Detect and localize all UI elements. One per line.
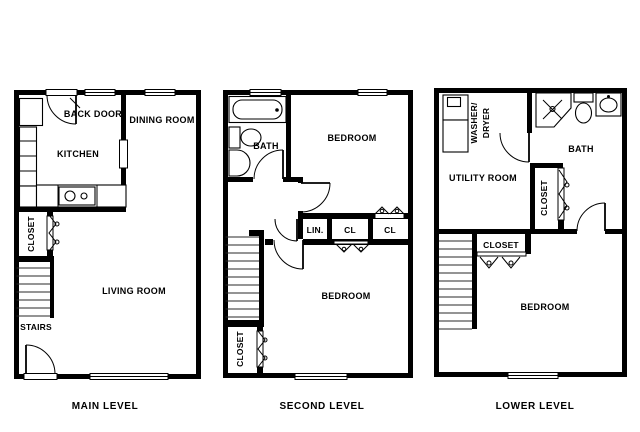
front-door-opening: [24, 374, 57, 380]
utility-door-swing: [500, 133, 529, 162]
sink-icon: [596, 93, 621, 116]
stairs: [226, 237, 260, 317]
stairs-label: STAIRS: [20, 322, 52, 332]
bath-door-swing: [254, 150, 283, 179]
shower-icon: [536, 93, 571, 127]
toilet-icon: [574, 93, 593, 123]
kitchen-sink-icon: [59, 187, 95, 205]
second-level-plan: BATH BEDROOM LIN. CL CL BEDROOM CLOSET S…: [223, 90, 413, 413]
bedroom-label: BEDROOM: [520, 302, 569, 312]
utility-room-label: UTILITY ROOM: [449, 173, 517, 183]
kitchen-pass-window: [120, 140, 128, 168]
bedroom-upper-door-swing: [301, 183, 330, 212]
floor-plan-canvas: BACK DOOR DINING ROOM KITCHEN CLOSET LIV…: [0, 0, 640, 432]
washer-dryer-label-line2: DRYER: [481, 108, 491, 138]
refrigerator-icon: [20, 99, 43, 126]
closet-top-label: CLOSET: [483, 240, 519, 250]
bath-door-swing: [577, 203, 605, 231]
closet-label: CLOSET: [235, 331, 245, 367]
kitchen-label: KITCHEN: [57, 149, 99, 159]
bifold-door-icon: [257, 331, 267, 367]
bath-label: BATH: [568, 144, 594, 154]
back-door-label: BACK DOOR: [64, 109, 122, 119]
bathtub-icon: [229, 97, 286, 123]
bifold-door-icon: [558, 168, 569, 220]
sink-icon: [229, 150, 250, 176]
closet-a-label: CL: [344, 225, 356, 235]
washer-dryer-label-line1: WASHER/: [469, 102, 479, 144]
bedroom-lower-label: BEDROOM: [321, 291, 370, 301]
dining-room-label: DINING ROOM: [129, 115, 194, 125]
walls: [14, 90, 201, 379]
bedroom-upper-label: BEDROOM: [327, 133, 376, 143]
linen-label: LIN.: [307, 225, 324, 235]
bath-label: BATH: [253, 141, 279, 151]
floor-plan-page: BACK DOOR DINING ROOM KITCHEN CLOSET LIV…: [0, 0, 640, 432]
second-level-title: SECOND LEVEL: [280, 401, 365, 412]
back-door-opening: [46, 90, 77, 96]
closet-label: CLOSET: [26, 216, 36, 252]
front-door-swing: [26, 345, 55, 374]
bifold-door-icon: [477, 252, 526, 268]
bedroom-lower-door-swing: [274, 240, 303, 269]
lower-level-title: LOWER LEVEL: [496, 401, 575, 412]
stairs: [17, 268, 51, 316]
bifold-door-icon: [334, 240, 369, 252]
lower-level-plan: WASHER/ DRYER UTILITY ROOM BATH CLOSET C…: [434, 88, 627, 412]
living-room-label: LIVING ROOM: [102, 286, 166, 296]
main-level-title: MAIN LEVEL: [72, 401, 139, 412]
closet-b-label: CL: [384, 225, 396, 235]
stairs: [439, 241, 472, 329]
washer-dryer-icon: [443, 95, 468, 152]
main-level-plan: BACK DOOR DINING ROOM KITCHEN CLOSET LIV…: [14, 90, 201, 413]
bifold-door-icon: [375, 207, 404, 219]
linen-door-swing: [275, 219, 297, 241]
bifold-door-icon: [47, 215, 59, 251]
closet-side-label: CLOSET: [539, 180, 549, 216]
